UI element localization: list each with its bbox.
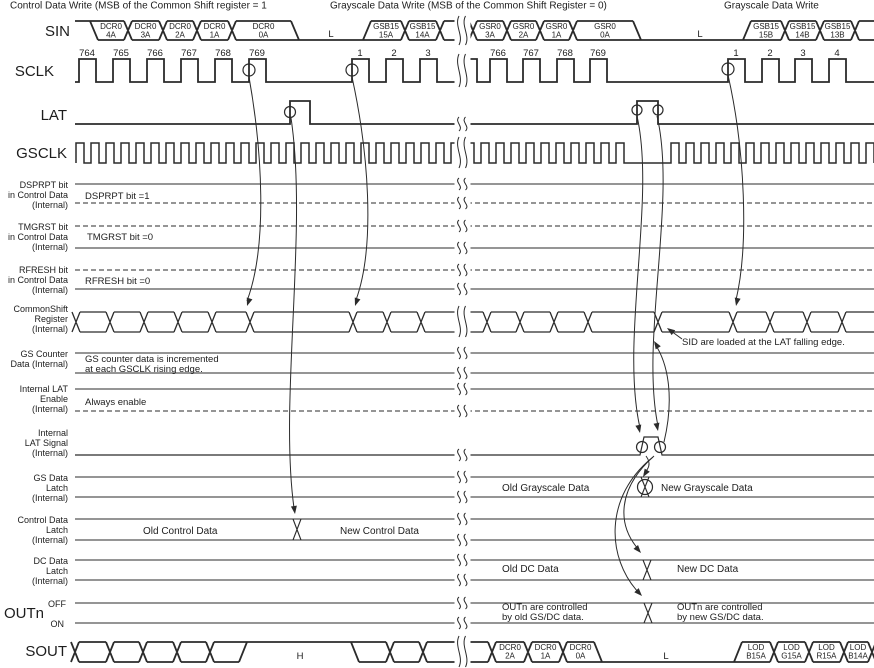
timing-diagram: Control Data Write (MSB of the Common Sh… — [0, 0, 874, 668]
signal-label-sclk: SCLK — [15, 63, 54, 80]
sin-cell-bottom: 1A — [210, 31, 220, 40]
signal-label-sout: SOUT — [25, 643, 67, 660]
lat-waveform — [75, 101, 874, 124]
break-mask — [455, 554, 471, 566]
row-label-dsprpt: in Control Data — [8, 190, 68, 200]
sout-level-label: L — [663, 651, 668, 662]
outn-off-label: OFF — [48, 599, 66, 609]
break-mask — [455, 264, 471, 276]
gsdata-new-text: New Grayscale Data — [661, 483, 753, 494]
break-mask — [455, 636, 471, 667]
sout-cell-bottom: R15A — [816, 652, 837, 661]
row-label-dsprpt: (Internal) — [32, 200, 68, 210]
dsprpt-note: DSPRPT bit =1 — [85, 191, 150, 202]
sin-cell-bottom: 0A — [600, 31, 610, 40]
sout-cell-bottom: 2A — [505, 652, 515, 661]
arrow-curve — [290, 118, 297, 508]
break-mask — [455, 617, 471, 629]
sclk-number: 768 — [557, 48, 573, 59]
sout-cell-bottom: 1A — [541, 652, 551, 661]
ctrl-old-text: Old Control Data — [143, 526, 218, 537]
arrowhead — [355, 297, 361, 306]
arrow-curve — [247, 77, 261, 301]
break-mask — [455, 178, 471, 190]
outn-old-text: by old GS/DC data. — [502, 612, 584, 623]
sclk-number: 3 — [425, 48, 430, 59]
ctrl-cross — [293, 519, 301, 540]
signal-label-outn: OUTn — [4, 605, 44, 622]
sclk-number: 766 — [147, 48, 163, 59]
break-mask — [455, 367, 471, 379]
sout-cell-bottom: B14A — [848, 652, 868, 661]
break-mask — [455, 597, 471, 609]
row-label-shift: CommonShift — [13, 304, 68, 314]
row-label-gscnt: GS Counter — [20, 349, 68, 359]
break-mask — [455, 16, 471, 45]
sin-cell-bottom: 4A — [106, 31, 116, 40]
row-label-gsdata: (Internal) — [32, 493, 68, 503]
header-label: Control Data Write (MSB of the Common Sh… — [10, 1, 267, 12]
break-mask — [455, 117, 471, 131]
break-mask — [455, 534, 471, 546]
sin-cell-bottom: 14B — [795, 31, 809, 40]
row-label-tmgrst: (Internal) — [32, 242, 68, 252]
row-label-ctrl: (Internal) — [32, 535, 68, 545]
row-label-laten: (Internal) — [32, 404, 68, 414]
tmgrst-note: TMGRST bit =0 — [87, 232, 153, 243]
sout-cell-bottom: 0A — [576, 652, 586, 661]
sclk-number: 1 — [733, 48, 738, 59]
break-mask — [455, 513, 471, 525]
rfresh-note: RFRESH bit =0 — [85, 276, 150, 287]
arrow-curve — [728, 75, 744, 300]
row-label-ilat: LAT Signal — [25, 438, 68, 448]
signal-label-lat: LAT — [41, 107, 67, 124]
sout-cell-bottom: G15A — [781, 652, 802, 661]
sclk-number: 2 — [767, 48, 772, 59]
break-mask — [455, 347, 471, 359]
diagram-canvas: Control Data Write (MSB of the Common Sh… — [0, 0, 874, 668]
break-mask — [455, 283, 471, 295]
arrowhead — [654, 341, 661, 349]
ilat-waveform — [75, 437, 874, 455]
break-mask — [455, 220, 471, 232]
break-mask — [455, 471, 471, 483]
sclk-number: 769 — [590, 48, 606, 59]
arrowhead — [247, 297, 253, 306]
row-label-ilat: (Internal) — [32, 448, 68, 458]
outn-new-text: by new GS/DC data. — [677, 612, 764, 623]
signal-label-gsclk: GSCLK — [16, 145, 67, 162]
shift-waveform — [72, 312, 874, 332]
break-mask — [455, 574, 471, 586]
row-label-dcdata: (Internal) — [32, 576, 68, 586]
dcdata-cross — [643, 560, 651, 580]
row-label-ilat: Internal — [38, 428, 68, 438]
dcdata-old-text: Old DC Data — [502, 564, 559, 575]
row-label-gscnt: Data (Internal) — [10, 359, 68, 369]
arrowhead — [643, 469, 650, 477]
row-label-laten: Enable — [40, 394, 68, 404]
break-mask — [455, 54, 471, 87]
sclk-number: 4 — [834, 48, 839, 59]
row-label-ctrl: Control Data — [17, 515, 68, 525]
sclk-number: 769 — [249, 48, 265, 59]
row-label-dsprpt: DSPRPT bit — [20, 180, 69, 190]
row-label-laten: Internal LAT — [20, 384, 69, 394]
arrowhead — [654, 423, 660, 431]
break-mask — [455, 491, 471, 503]
outn-cross — [644, 603, 652, 623]
break-mask — [455, 242, 471, 254]
sclk-number: 767 — [181, 48, 197, 59]
sclk-number: 3 — [800, 48, 805, 59]
sclk-waveform — [75, 59, 874, 82]
dcdata-new-text: New DC Data — [677, 564, 739, 575]
row-label-rfresh: RFRESH bit — [19, 265, 69, 275]
sin-cell-bottom: 1A — [552, 31, 562, 40]
laten-note: Always enable — [85, 397, 146, 408]
break-mask — [455, 449, 471, 461]
ctrl-new-text: New Control Data — [340, 526, 419, 537]
sclk-number: 1 — [357, 48, 362, 59]
arrowhead — [635, 425, 641, 433]
arrowhead — [735, 298, 741, 306]
row-label-dcdata: DC Data — [33, 556, 68, 566]
outn-on-label: ON — [51, 619, 65, 629]
sout-level-label: H — [297, 651, 304, 662]
header-label: Grayscale Data Write (MSB of the Common … — [330, 1, 607, 12]
sin-level-label: L — [697, 29, 702, 40]
sin-cell-bottom: 3A — [485, 31, 495, 40]
arrowhead — [634, 545, 641, 553]
sin-cell-bottom: 0A — [259, 31, 269, 40]
row-label-dcdata: Latch — [46, 566, 68, 576]
header-label: Grayscale Data Write — [724, 1, 819, 12]
sin-cell-bottom: 13B — [830, 31, 844, 40]
row-label-shift: Register — [34, 314, 68, 324]
row-label-rfresh: (Internal) — [32, 285, 68, 295]
break-mask — [455, 383, 471, 395]
arrowhead — [291, 506, 297, 514]
signal-label-sin: SIN — [45, 23, 70, 40]
break-mask — [455, 137, 471, 168]
sin-level-label: L — [328, 29, 333, 40]
gsdata-old-text: Old Grayscale Data — [502, 483, 590, 494]
sin-cell-bottom: 15A — [379, 31, 394, 40]
sclk-number: 765 — [113, 48, 129, 59]
sin-cell-bottom: 15B — [759, 31, 773, 40]
sclk-number: 767 — [523, 48, 539, 59]
sout-cell-bottom: B15A — [746, 652, 766, 661]
gsclk-waveform — [76, 143, 874, 163]
row-label-shift: (Internal) — [32, 324, 68, 334]
row-label-gsdata: Latch — [46, 483, 68, 493]
sin-cell-bottom: 2A — [519, 31, 529, 40]
break-mask — [455, 306, 471, 337]
sclk-number: 764 — [79, 48, 95, 59]
sclk-number: 768 — [215, 48, 231, 59]
sin-cell-bottom: 2A — [175, 31, 185, 40]
sid-annotation: SID are loaded at the LAT falling edge. — [682, 337, 845, 348]
arrow-curve — [352, 77, 368, 300]
sclk-number: 766 — [490, 48, 506, 59]
row-label-tmgrst: in Control Data — [8, 232, 68, 242]
sin-cell-bottom: 3A — [141, 31, 151, 40]
sin-cell-bottom: 14A — [415, 31, 430, 40]
row-label-ctrl: Latch — [46, 525, 68, 535]
sclk-number: 2 — [391, 48, 396, 59]
gscnt-note: at each GSCLK rising edge. — [85, 364, 203, 375]
break-mask — [455, 197, 471, 209]
row-label-rfresh: in Control Data — [8, 275, 68, 285]
row-label-gsdata: GS Data — [33, 473, 68, 483]
break-mask — [455, 405, 471, 417]
row-label-tmgrst: TMGRST bit — [18, 222, 68, 232]
